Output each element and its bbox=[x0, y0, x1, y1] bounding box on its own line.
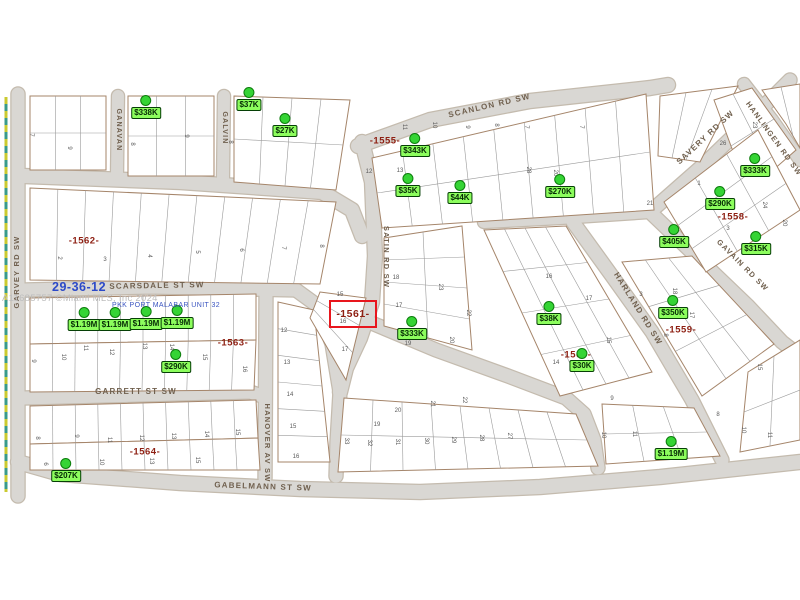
lot-number: 19 bbox=[405, 341, 412, 347]
price-marker[interactable]: $290K bbox=[161, 349, 191, 373]
price-marker[interactable]: $1.19M bbox=[99, 307, 132, 331]
lot-number: 26 bbox=[720, 141, 727, 147]
street-name-label: GARRETT ST SW bbox=[95, 387, 177, 396]
lot-number: 20 bbox=[781, 220, 787, 227]
price-marker[interactable]: $35K bbox=[395, 173, 420, 197]
parcel-block bbox=[372, 94, 654, 228]
price-marker-label: $290K bbox=[705, 198, 735, 210]
price-marker-label: $405K bbox=[659, 236, 689, 248]
lot-number: 11 bbox=[766, 432, 772, 439]
street-name-label: HANOVER AV SW bbox=[263, 404, 272, 483]
price-marker[interactable]: $30K bbox=[569, 348, 594, 372]
price-marker-label: $343K bbox=[400, 145, 430, 157]
lot-number: 11 bbox=[106, 437, 112, 444]
lot-number: 12 bbox=[281, 328, 288, 334]
price-marker[interactable]: $333K bbox=[740, 153, 770, 177]
price-marker[interactable]: $333K bbox=[397, 316, 427, 340]
lot-number: 11 bbox=[631, 431, 637, 438]
price-marker[interactable]: $343K bbox=[400, 133, 430, 157]
lot-number: 13 bbox=[148, 458, 154, 465]
lot-number: 10 bbox=[431, 122, 437, 129]
street-name-label: SCARSDALE ST SW bbox=[109, 280, 204, 291]
price-marker-label: $290K bbox=[161, 361, 191, 373]
price-marker[interactable]: $37K bbox=[236, 87, 261, 111]
lot-number: 28 bbox=[525, 167, 531, 174]
price-marker[interactable]: $38K bbox=[536, 301, 561, 325]
lot-number: 15 bbox=[290, 424, 297, 430]
lot-number: 13 bbox=[284, 360, 291, 366]
price-marker[interactable]: $1.19M bbox=[655, 436, 688, 460]
mls-parcel-map[interactable]: SCARSDALE ST SWGARRETT ST SWGABELMANN ST… bbox=[0, 0, 800, 600]
price-marker-label: $315K bbox=[741, 243, 771, 255]
lot-number: 15 bbox=[756, 364, 762, 371]
price-marker[interactable]: $315K bbox=[741, 231, 771, 255]
lot-number: 23 bbox=[751, 122, 757, 129]
lot-number: 15 bbox=[201, 354, 207, 361]
price-marker-pin-icon bbox=[554, 174, 565, 185]
price-marker-pin-icon bbox=[244, 87, 255, 98]
price-marker[interactable]: $290K bbox=[705, 186, 735, 210]
lot-number: 13 bbox=[170, 433, 176, 440]
parcel-block bbox=[338, 398, 598, 472]
price-marker-pin-icon bbox=[750, 231, 761, 242]
lot-number: 11 bbox=[82, 345, 88, 352]
section-township-range-label: 29-36-12 bbox=[52, 280, 106, 294]
lot-number: 24 bbox=[761, 202, 767, 209]
lot-number: 29 bbox=[450, 437, 456, 444]
price-marker-label: $27K bbox=[272, 125, 297, 137]
street-name-label: GALVIN bbox=[221, 111, 228, 144]
lot-number: 11 bbox=[401, 124, 407, 131]
lot-number: 16 bbox=[241, 366, 247, 373]
lot-number: 18 bbox=[671, 288, 677, 295]
price-marker-label: $338K bbox=[131, 107, 161, 119]
price-marker-label: $1.19M bbox=[161, 317, 194, 329]
lot-number: 33 bbox=[343, 438, 349, 445]
price-marker[interactable]: $338K bbox=[131, 95, 161, 119]
lot-number: 17 bbox=[688, 312, 694, 319]
price-marker-label: $37K bbox=[236, 99, 261, 111]
lot-number: 8 bbox=[716, 412, 720, 418]
price-marker[interactable]: $27K bbox=[272, 113, 297, 137]
lot-number: 19 bbox=[374, 422, 381, 428]
price-marker[interactable]: $405K bbox=[659, 224, 689, 248]
price-marker-pin-icon bbox=[577, 348, 588, 359]
lot-number: 9 bbox=[464, 125, 470, 129]
price-marker-pin-icon bbox=[406, 316, 417, 327]
lot-number: 20 bbox=[448, 337, 454, 344]
lot-number: 18 bbox=[393, 275, 400, 281]
price-marker-label: $333K bbox=[740, 165, 770, 177]
lot-number: 15 bbox=[234, 429, 240, 436]
lot-number: 16 bbox=[546, 274, 553, 280]
price-marker-label: $1.19M bbox=[130, 318, 163, 330]
lot-number: 14 bbox=[203, 431, 209, 438]
price-marker-pin-icon bbox=[667, 295, 678, 306]
lot-number: 12 bbox=[366, 169, 373, 175]
lot-number: 32 bbox=[366, 440, 372, 447]
price-marker-label: $207K bbox=[51, 470, 81, 482]
lot-number: 27 bbox=[506, 433, 512, 440]
price-marker[interactable]: $207K bbox=[51, 458, 81, 482]
price-marker-label: $38K bbox=[536, 313, 561, 325]
lot-number: 16 bbox=[293, 454, 300, 460]
lot-number: 10 bbox=[60, 354, 66, 361]
lot-number: 17 bbox=[342, 347, 349, 353]
price-marker[interactable]: $44K bbox=[447, 180, 472, 204]
price-marker-pin-icon bbox=[455, 180, 466, 191]
lot-number: 22 bbox=[461, 397, 467, 404]
price-marker[interactable]: $270K bbox=[545, 174, 575, 198]
price-marker-label: $1.19M bbox=[68, 319, 101, 331]
lot-number: 22 bbox=[465, 310, 471, 317]
lot-number: 23 bbox=[437, 284, 443, 291]
price-marker[interactable]: $350K bbox=[658, 295, 688, 319]
street-name-label: SATIN RD SW bbox=[382, 226, 391, 288]
price-marker-pin-icon bbox=[668, 224, 679, 235]
price-marker-pin-icon bbox=[280, 113, 291, 124]
price-marker-pin-icon bbox=[170, 349, 181, 360]
lot-number: 9 bbox=[610, 396, 614, 402]
price-marker-pin-icon bbox=[749, 153, 760, 164]
price-marker-pin-icon bbox=[409, 133, 420, 144]
price-marker-pin-icon bbox=[140, 95, 151, 106]
lot-number: 10 bbox=[740, 427, 746, 434]
lot-number: 12 bbox=[138, 435, 144, 442]
price-marker-label: $350K bbox=[658, 307, 688, 319]
parcel-block bbox=[30, 188, 336, 284]
price-marker-label: $333K bbox=[397, 328, 427, 340]
highlighted-parcel-label: -1561- bbox=[336, 308, 369, 320]
price-marker-label: $30K bbox=[569, 360, 594, 372]
lot-number: 15 bbox=[194, 457, 200, 464]
lot-number: 21 bbox=[647, 201, 654, 207]
lot-number: 14 bbox=[287, 392, 294, 398]
lot-number: 15 bbox=[337, 292, 344, 298]
price-marker[interactable]: $1.19M bbox=[68, 307, 101, 331]
lot-number: 20 bbox=[395, 408, 402, 414]
lot-number: 30 bbox=[423, 438, 429, 445]
price-marker[interactable]: $1.19M bbox=[130, 306, 163, 330]
lot-number: 17 bbox=[396, 303, 403, 309]
highlighted-parcel[interactable]: -1561- bbox=[329, 300, 377, 328]
lot-number: 14 bbox=[553, 360, 560, 366]
street-name-label: GANAVAN bbox=[115, 109, 122, 152]
price-marker-label: $44K bbox=[447, 192, 472, 204]
price-marker-pin-icon bbox=[714, 186, 725, 197]
price-marker-label: $1.19M bbox=[655, 448, 688, 460]
price-marker-pin-icon bbox=[666, 436, 677, 447]
lot-number: 10 bbox=[600, 432, 606, 439]
lot-number: 12 bbox=[108, 349, 114, 356]
subdivision-label: PKK PORT MALABAR UNIT 32 bbox=[112, 302, 220, 309]
price-marker-pin-icon bbox=[544, 301, 555, 312]
price-marker-label: $1.19M bbox=[99, 319, 132, 331]
lot-number: 15 bbox=[605, 337, 611, 344]
lot-number: 28 bbox=[478, 435, 484, 442]
lot-number: 13 bbox=[141, 343, 147, 350]
price-marker-pin-icon bbox=[403, 173, 414, 184]
lot-number: 10 bbox=[98, 459, 104, 466]
lot-number: 8 bbox=[493, 123, 499, 127]
price-marker-label: $35K bbox=[395, 185, 420, 197]
lot-number: 21 bbox=[429, 401, 435, 408]
price-marker-pin-icon bbox=[60, 458, 71, 469]
price-marker-label: $270K bbox=[545, 186, 575, 198]
price-marker-pin-icon bbox=[79, 307, 90, 318]
lot-number: 17 bbox=[586, 296, 593, 302]
lot-number: 31 bbox=[394, 439, 400, 446]
